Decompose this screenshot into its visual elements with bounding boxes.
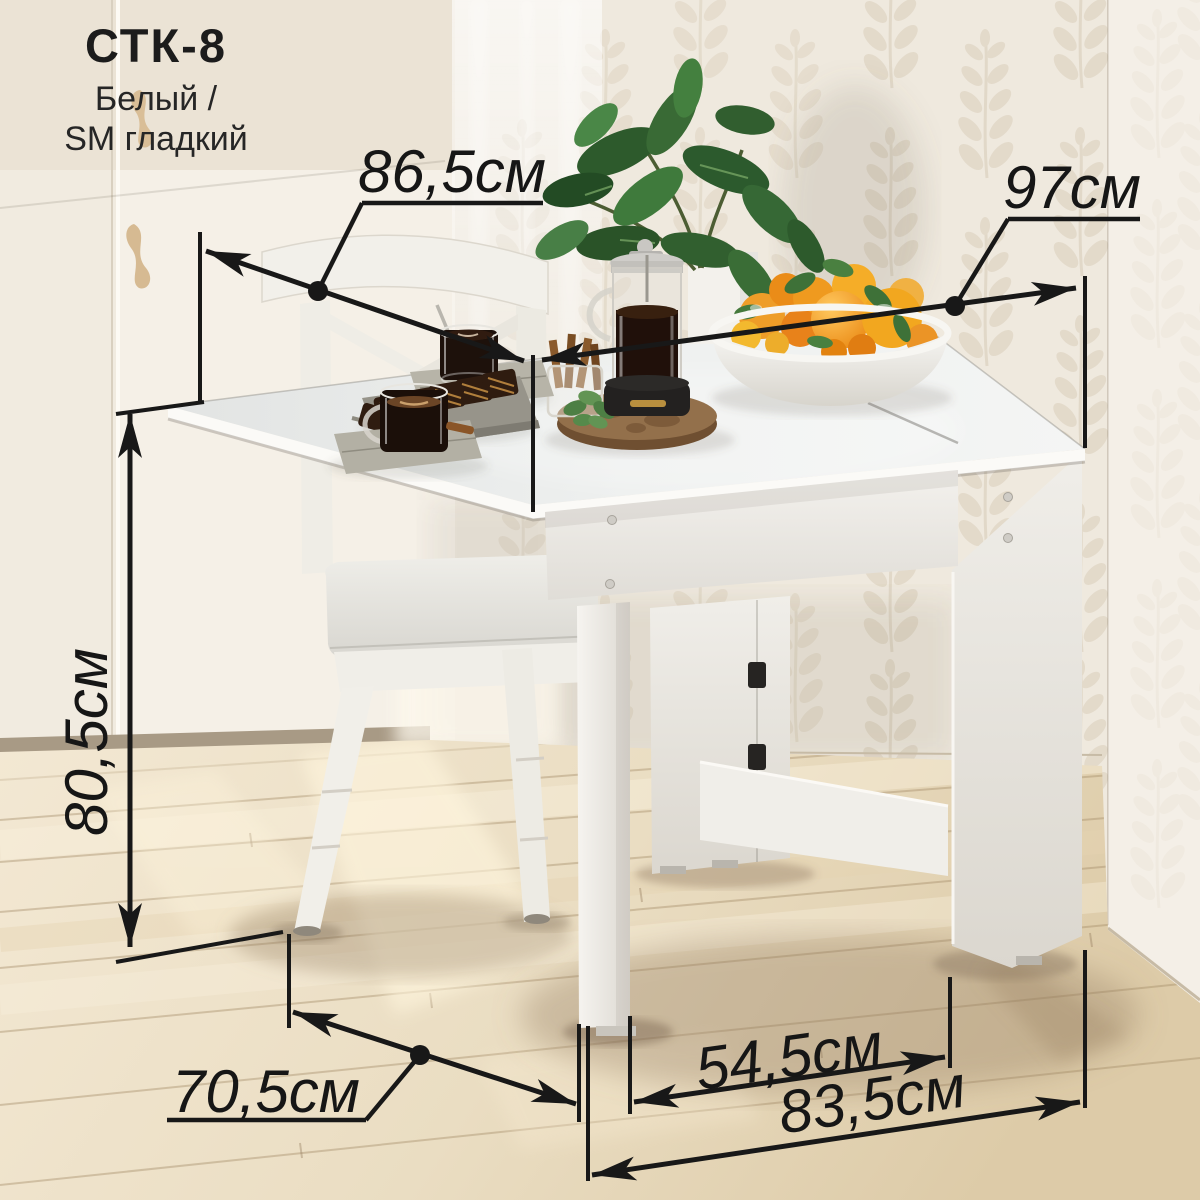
product-finish-line1: Белый / — [36, 79, 276, 119]
dim-label-base-depth: 70,5см — [156, 1062, 376, 1122]
product-model: СТК-8 — [36, 18, 276, 73]
product-finish-line2: SM гладкий — [36, 119, 276, 159]
table-front-leg — [577, 602, 636, 1036]
dim-label-tabletop-width: 97см — [987, 158, 1157, 218]
dim-label-height: 80,5см — [57, 602, 117, 882]
product-title-block: СТК-8 Белый / SM гладкий — [36, 18, 276, 159]
dim-label-tabletop-depth: 86,5см — [338, 142, 566, 202]
product-dimension-photo: СТК-8 Белый / SM гладкий 86,5см 97см 80,… — [0, 0, 1200, 1200]
